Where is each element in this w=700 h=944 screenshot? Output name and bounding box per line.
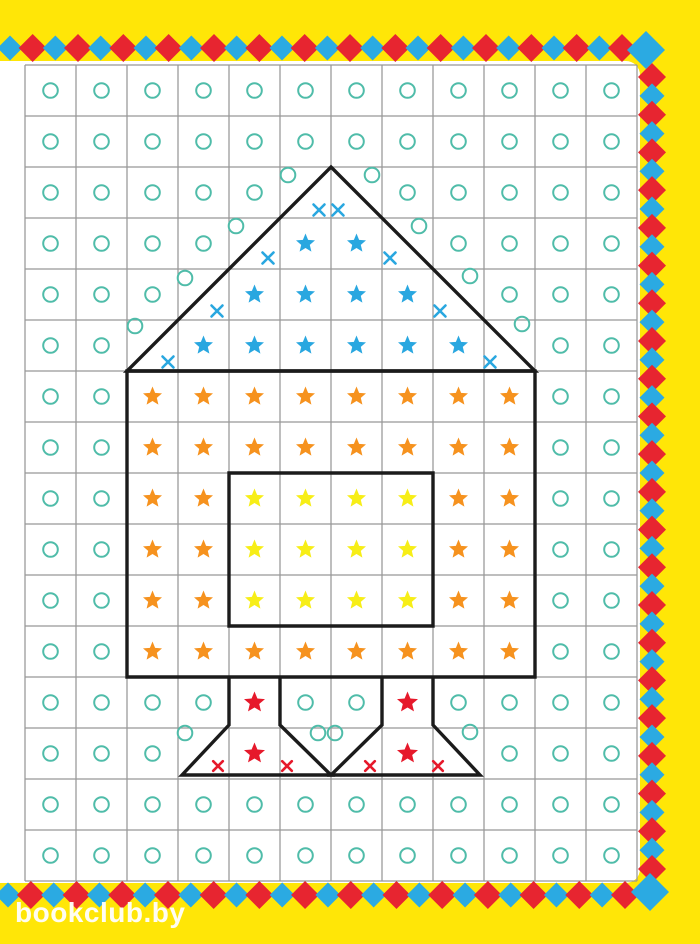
rocket-grid-art (0, 0, 700, 944)
watermark: bookclub.by (15, 897, 185, 929)
worksheet-page: bookclub.by (0, 0, 700, 944)
